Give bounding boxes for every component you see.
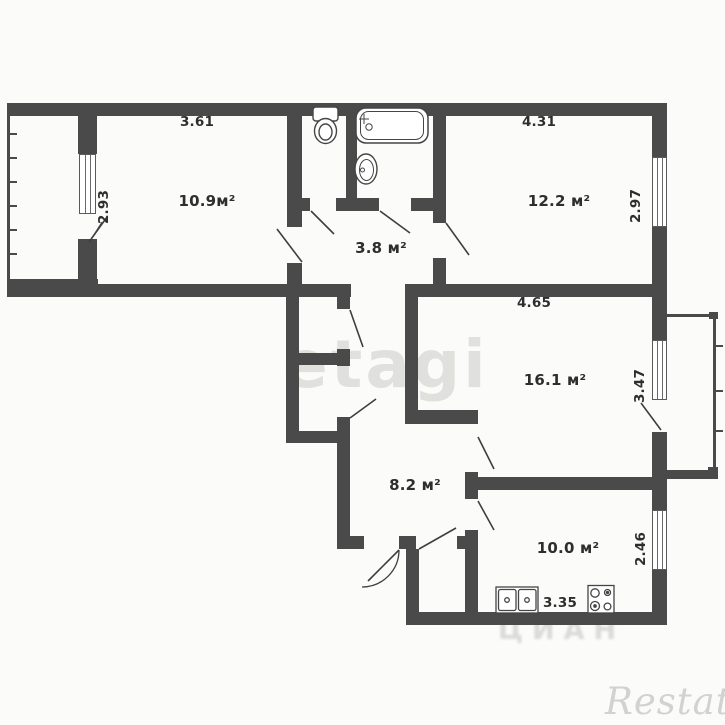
room-area-38: 3.8 м² — [355, 239, 407, 257]
dim-label-431: 4.31 — [522, 114, 556, 130]
watermark-restate: Restate — [605, 680, 725, 723]
toilet-fixture — [313, 107, 338, 144]
door-109 — [277, 229, 302, 262]
room-area-100: 10.0 м² — [537, 539, 599, 557]
door-122 — [446, 223, 469, 255]
dim-label-361: 3.61 — [180, 114, 214, 130]
door-balcony-161 — [641, 403, 661, 430]
kitchen-sink-fixture — [496, 587, 538, 613]
room-area-122: 12.2 м² — [528, 192, 590, 210]
door-wc — [311, 211, 334, 234]
dim-label-335: 3.35 — [543, 595, 577, 611]
door-closet-a — [350, 310, 363, 347]
dim-label-297: 2.97 — [628, 189, 644, 223]
dim-leader — [90, 222, 102, 241]
floor-plan: etagi ЦИАН — [0, 0, 725, 725]
entrance-door-leaf — [368, 550, 399, 581]
stove-fixture — [588, 586, 614, 614]
door-closet-b — [350, 399, 376, 418]
room-area-82: 8.2 м² — [389, 476, 441, 494]
dim-label-246: 2.46 — [633, 532, 649, 566]
dim-label-293: 2.93 — [96, 190, 112, 224]
door-kitchen — [478, 501, 494, 530]
room-area-161: 16.1 м² — [524, 371, 586, 389]
room-area-109: 10.9м² — [178, 192, 235, 210]
wash-basin-fixture — [355, 154, 377, 184]
door-161 — [478, 437, 494, 469]
doors-and-fixtures-layer — [0, 0, 725, 725]
door-storage — [419, 528, 456, 549]
bathtub-fixture — [356, 108, 428, 143]
dim-label-465: 4.65 — [517, 295, 551, 311]
door-bath — [380, 211, 410, 233]
dim-label-347: 3.47 — [632, 369, 648, 403]
